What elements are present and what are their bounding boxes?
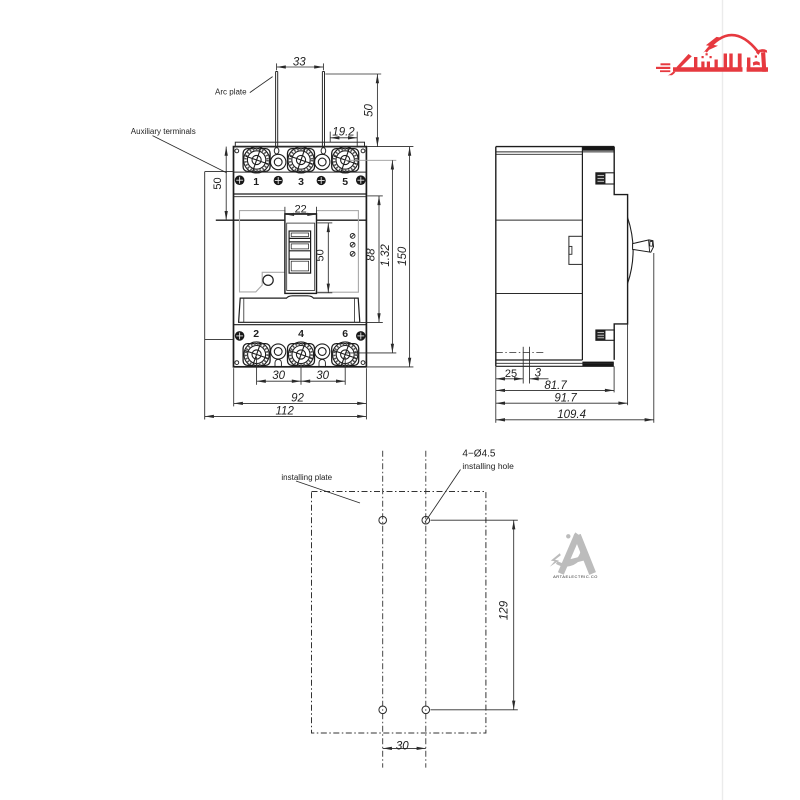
svg-text:88: 88 xyxy=(366,248,378,261)
svg-text:81.7: 81.7 xyxy=(544,380,567,392)
svg-text:4−Ø4.5: 4−Ø4.5 xyxy=(462,449,496,460)
svg-text:3: 3 xyxy=(298,176,304,188)
svg-text:50: 50 xyxy=(315,249,327,261)
svg-text:1: 1 xyxy=(253,176,259,188)
svg-text:50: 50 xyxy=(212,177,224,189)
svg-text:22: 22 xyxy=(295,204,307,216)
svg-text:30: 30 xyxy=(396,741,409,753)
svg-text:Auxiliary terminals: Auxiliary terminals xyxy=(131,127,196,136)
svg-text:ARTAELECTRIC.CO: ARTAELECTRIC.CO xyxy=(553,574,598,579)
svg-text:33: 33 xyxy=(293,56,306,68)
svg-text:30: 30 xyxy=(272,370,285,382)
svg-text:150: 150 xyxy=(397,246,409,266)
svg-text:109.4: 109.4 xyxy=(557,409,586,421)
svg-text:25: 25 xyxy=(505,368,517,380)
svg-text:5: 5 xyxy=(342,176,348,188)
svg-text:1.32: 1.32 xyxy=(380,244,392,267)
svg-text:129: 129 xyxy=(498,600,510,620)
svg-text:2: 2 xyxy=(253,328,259,340)
svg-text:30: 30 xyxy=(316,370,329,382)
svg-text:50: 50 xyxy=(364,104,376,117)
svg-text:19.2: 19.2 xyxy=(332,127,355,139)
svg-text:installing plate: installing plate xyxy=(281,473,332,482)
svg-text:installing hole: installing hole xyxy=(462,461,514,471)
svg-text:91.7: 91.7 xyxy=(554,393,577,405)
svg-text:6: 6 xyxy=(342,328,348,340)
svg-text:4: 4 xyxy=(298,328,304,340)
svg-text:92: 92 xyxy=(291,392,304,404)
svg-text:3: 3 xyxy=(535,368,542,380)
svg-text:112: 112 xyxy=(276,406,295,418)
svg-text:Arc plate: Arc plate xyxy=(215,88,247,97)
